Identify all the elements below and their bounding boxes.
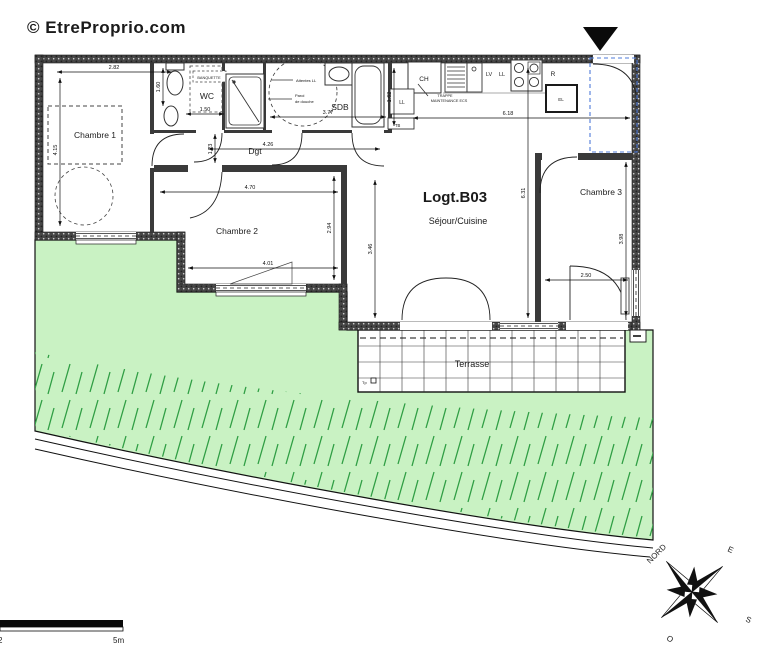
- banquette-label: BANQUETTE: [197, 76, 221, 80]
- entry-arrow-marker: [583, 27, 618, 51]
- compass-west-label: O: [665, 634, 674, 645]
- compass-north-label: NORD: [645, 542, 668, 565]
- cooktop: [511, 60, 542, 91]
- el-label: EL: [558, 97, 564, 102]
- floor-plan-page: Terrasse Tp: [0, 0, 765, 647]
- dim-chambre3-height: 3.98: [619, 234, 625, 245]
- chambre1-label: Chambre 1: [74, 130, 116, 140]
- floor-plan-drawing: Terrasse Tp: [0, 0, 765, 647]
- door-chambre3: [540, 157, 577, 193]
- chambre3-label: Chambre 3: [580, 187, 622, 197]
- door-chambre1: [152, 134, 184, 166]
- wc-label: WC: [200, 91, 214, 101]
- dim-dgt-height: 1.23: [208, 144, 214, 155]
- dim-sejour-height-left: 3.46: [368, 244, 374, 255]
- trappe-line2: MAINTENANCE ECS: [431, 99, 468, 103]
- dgt-label: Dgt: [248, 146, 262, 156]
- compass-south-label: S: [744, 615, 753, 625]
- terrace: Terrasse Tp: [358, 330, 646, 392]
- dim-sdb-height: 1.62: [387, 92, 393, 103]
- compass-rose: NORD E S O: [636, 536, 753, 647]
- door-entry: [593, 64, 637, 106]
- attentes-ll-label: Attentes LL: [296, 78, 317, 83]
- terrace-deck: [358, 330, 625, 392]
- door-sdb: [352, 133, 384, 166]
- terrace-tp-label: Tp: [362, 380, 367, 385]
- terrace-label: Terrasse: [455, 359, 490, 369]
- chambre3-radiator: [621, 278, 629, 314]
- door-chambre3-terrace: [570, 266, 626, 320]
- dim-chambre1-width: 2.82: [109, 65, 120, 71]
- entry-tech-zone-dashed: [590, 58, 637, 152]
- chambre2-casement-swing: [230, 262, 292, 284]
- sdb-label: SDB: [331, 102, 349, 112]
- chambre1-furniture: [48, 106, 122, 225]
- chambre2-label: Chambre 2: [216, 226, 258, 236]
- dim-chambre1-height: 4.15: [53, 145, 59, 156]
- dim-wc-width: 1.50: [200, 107, 211, 113]
- ll-closet-label: LL: [399, 100, 405, 106]
- scale-bar: 2 5m: [0, 620, 124, 645]
- tb-label: TB: [395, 123, 401, 128]
- wall-ch1-ch2-link: [177, 232, 185, 292]
- paroi-douche-line2: de douche: [295, 99, 314, 104]
- sdb-washbasin: [325, 63, 353, 85]
- watermark: © EtreProprio.com: [27, 18, 186, 37]
- tb-box: [388, 118, 414, 129]
- dim-chambre2-height: 2.94: [327, 223, 333, 234]
- dim-wc-height: 1.60: [156, 82, 162, 93]
- wall-left: [35, 55, 43, 240]
- sejour-label: Séjour/Cuisine: [429, 216, 488, 226]
- kitchen-ll-label: LL: [499, 72, 505, 78]
- door-sejour-left-leaf: [402, 278, 446, 320]
- terrace-tp-box: [371, 378, 376, 383]
- scale-bar-white: [0, 627, 123, 631]
- shower: [226, 74, 264, 128]
- wc-toilet: [166, 63, 184, 95]
- scale-bar-black: [0, 620, 123, 627]
- door-chambre2: [190, 172, 222, 218]
- scale-length-label: 5m: [113, 636, 124, 645]
- bathtub: [352, 63, 384, 127]
- wall-top: [35, 55, 640, 63]
- logement-label: Logt.B03: [423, 189, 487, 206]
- dim-kitchen-width: 6.18: [503, 111, 514, 117]
- kitchen-ch-label: CH: [419, 76, 429, 83]
- door-sejour-right-leaf: [446, 278, 490, 320]
- kitchen-r-label: R: [551, 71, 556, 78]
- wc-washbasin: [164, 106, 178, 126]
- dim-chambre2-width-bottom: 4.01: [263, 261, 274, 267]
- scale-origin-label: 2: [0, 636, 3, 645]
- dim-chambre2-width-top: 4.70: [245, 185, 256, 191]
- trappe-line1: TRAPPE: [437, 94, 453, 98]
- paroi-douche-line1: Paroi: [295, 93, 304, 98]
- dim-chambre3-width: 2.50: [581, 273, 592, 279]
- dim-sejour-height-right: 6.31: [521, 188, 527, 199]
- kitchen-lv-label: LV: [486, 72, 493, 78]
- dim-dgt-width: 4.26: [263, 142, 274, 148]
- compass-east-label: E: [726, 545, 735, 555]
